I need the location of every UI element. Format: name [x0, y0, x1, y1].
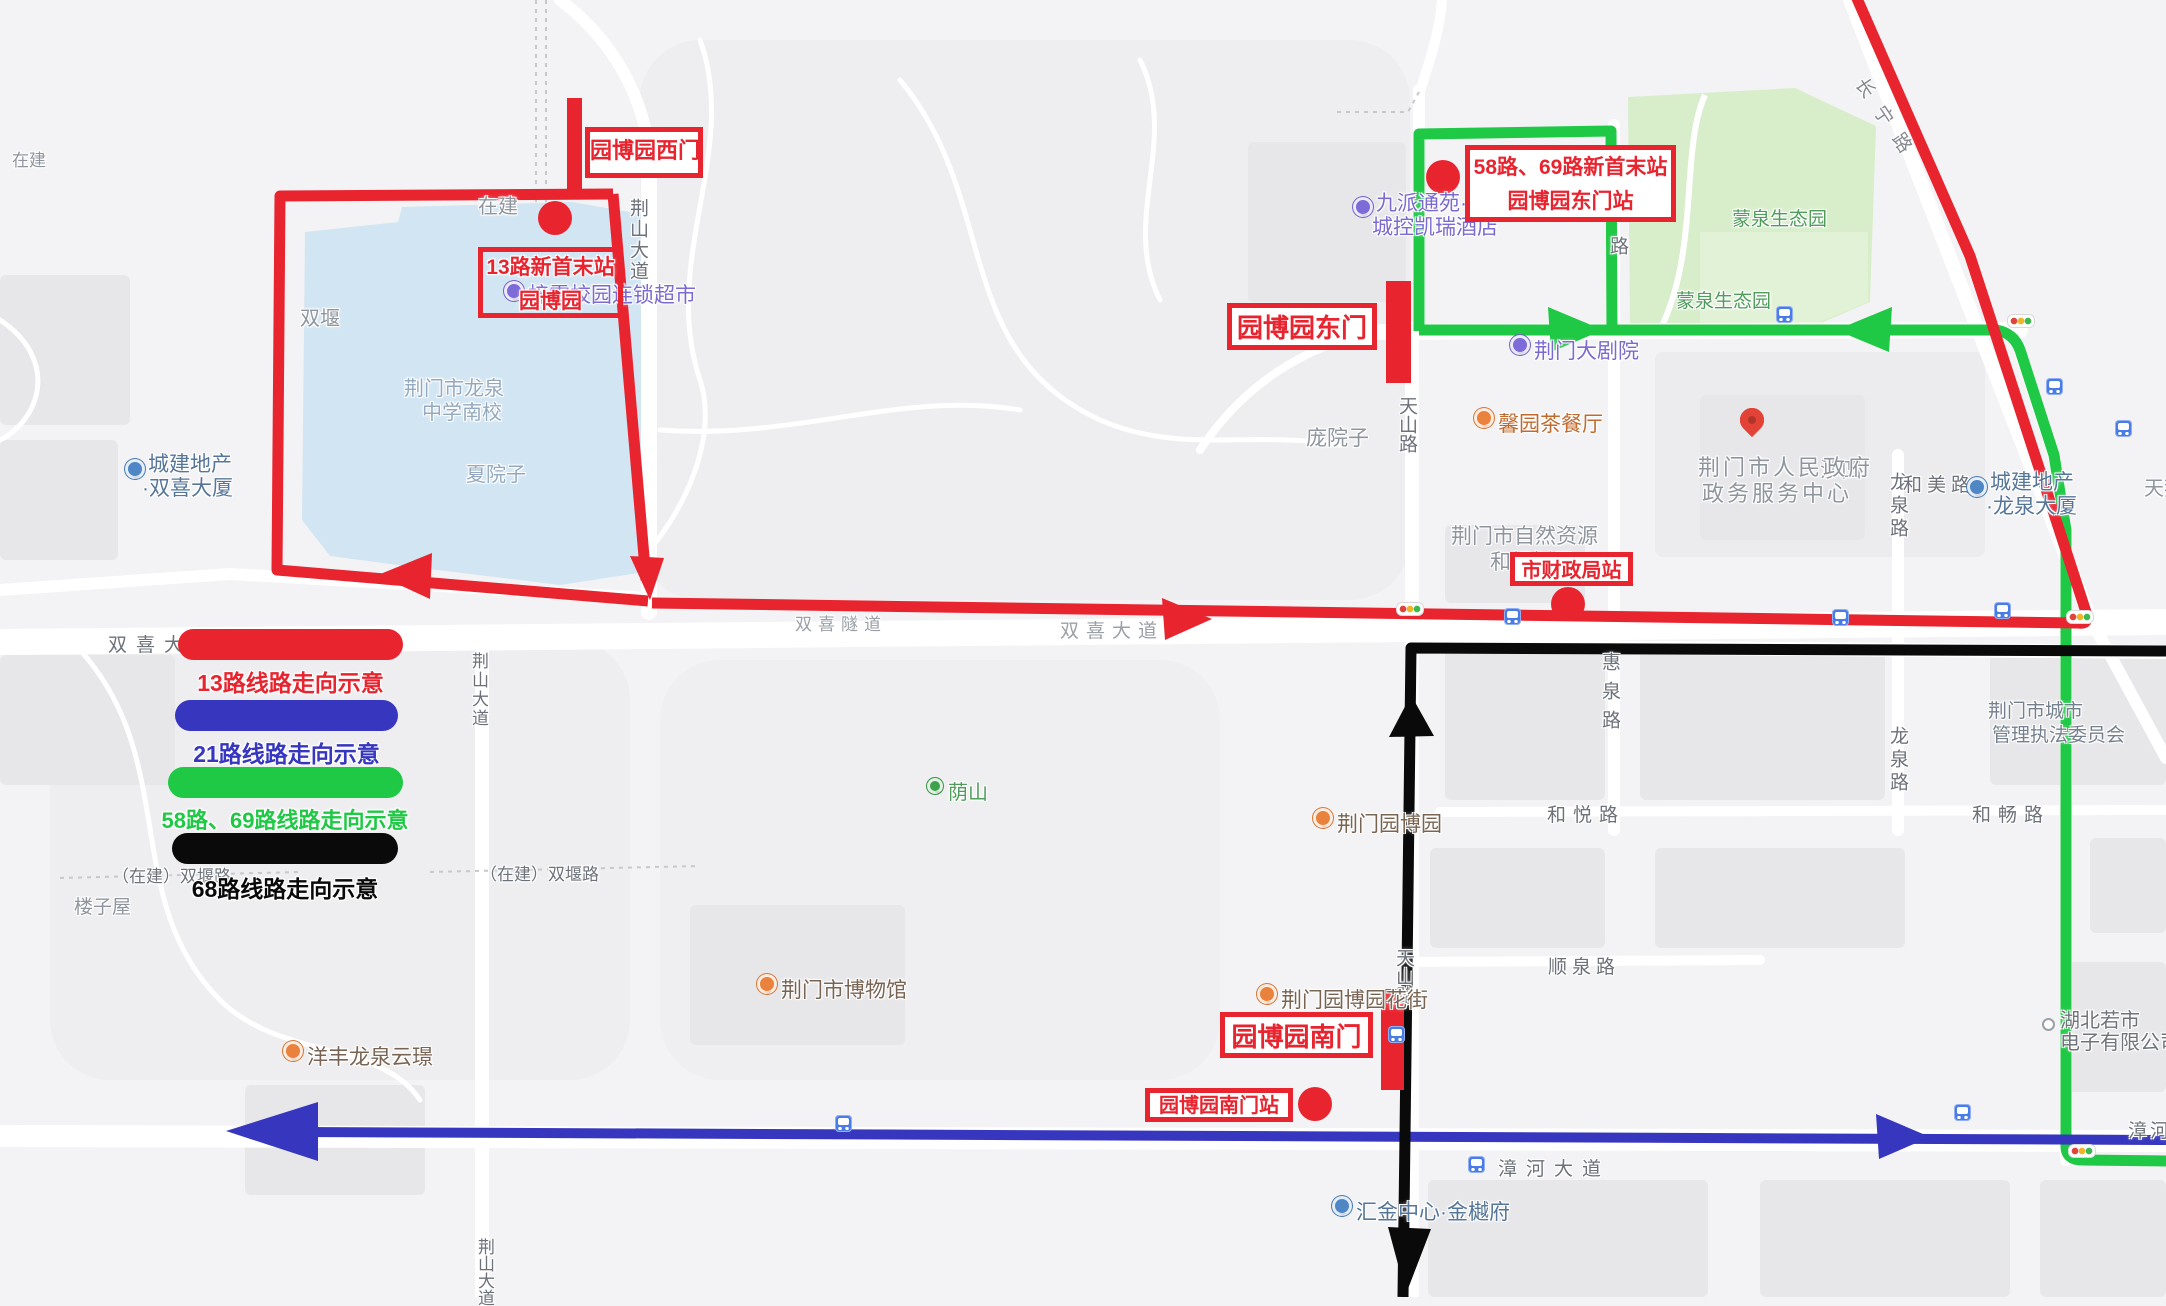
- route-68-arrow-up: [1389, 695, 1434, 737]
- park-poi-icon: [1312, 807, 1334, 829]
- bus-stop-icon: [835, 1115, 852, 1132]
- traffic-light-icon: [1396, 602, 1424, 616]
- residence-poi-icon: [282, 1040, 304, 1062]
- poi-yinshan: 荫山: [948, 776, 988, 805]
- station-dot-caizheng: [1551, 587, 1585, 621]
- area-label-mengquan-lower: 蒙泉生态园: [1676, 286, 1771, 313]
- area-label-pangyuanzi: 庞院子: [1306, 422, 1369, 452]
- station-dot-13: [538, 201, 572, 235]
- theater-poi-icon: [1509, 334, 1531, 356]
- poi-chengguan-line2: 管理执法委员会: [1992, 720, 2125, 747]
- road-label-hechang-lu: 和畅路: [1972, 800, 2050, 827]
- road-label-shuangxi-dadao-center: 双喜大道: [1060, 616, 1164, 643]
- bus-stop-icon: [1954, 1104, 1971, 1121]
- legend-bar-route-13: [178, 629, 403, 660]
- bus-stop-icon: [1832, 609, 1849, 626]
- station-dot-nanmen: [1298, 1087, 1332, 1121]
- road-label-zhanghe-dadao: 漳河大道: [1498, 1154, 1610, 1181]
- mountain-poi-icon: [926, 777, 944, 795]
- road-label-shuangyan-lu-center: （在建）双堰路: [480, 860, 599, 885]
- bus-stop-icon: [1504, 608, 1521, 625]
- area-label-zaijian-westgate: 在建: [478, 190, 518, 219]
- poi-jingmen-yuanboyuan: 荆门园博园: [1337, 808, 1442, 838]
- route-68-arrow-down: [1388, 1227, 1431, 1294]
- poi-chengjian-longquan-line2: ·龙泉大厦: [1986, 490, 2077, 520]
- bus-stop-icon: [1388, 1026, 1405, 1043]
- poi-yuanboyuan-huajie: 荆门园博园花街: [1281, 984, 1428, 1014]
- poi-chengguan-line1: 荆门市城市: [1988, 696, 2083, 723]
- station-label-58-69: 58路、69路新首末站 园博园东门站: [1465, 145, 1676, 222]
- gate-label-west: 园博园西门: [585, 127, 703, 178]
- station-label-caizheng: 市财政局站: [1510, 552, 1633, 586]
- station-label-13-line1: 13路新首末站: [483, 255, 618, 281]
- building-poi-icon: [1331, 1195, 1353, 1217]
- road-label-jingshan-dadao-south: 荆山大道: [466, 652, 491, 728]
- area-label-zaijian-topleft: 在建: [12, 146, 46, 171]
- legend-label-route-68: 68路线路走向示意: [172, 870, 398, 904]
- road-label-zhanghe-dadao-right: 漳河大道: [2128, 1116, 2166, 1143]
- road-label-longquan-lu-lower: 龙泉路: [1884, 726, 1911, 795]
- company-dot-icon: [2042, 1018, 2055, 1031]
- poi-jingmen-museum: 荆门市博物馆: [781, 974, 907, 1004]
- traffic-light-icon: [2007, 314, 2035, 328]
- road-label-shunquan-lu: 顺泉路: [1548, 952, 1620, 979]
- traffic-light-icon: [2068, 1144, 2096, 1158]
- road-label-jingshan-dadao-north: 荆山大道: [624, 198, 651, 282]
- route-21-arrow-east: [1876, 1114, 1930, 1159]
- route-58-69-arrow-west: [1836, 307, 1892, 352]
- map-canvas[interactable]: 双喜大道 双喜隧道 双喜大道 荆山大道 荆山大道 荆山大道 天山路 天山路 惠泉…: [0, 0, 2166, 1297]
- gate-label-east: 园博园东门: [1227, 303, 1377, 350]
- area-label-shuangyan: 双堰: [300, 302, 340, 331]
- legend-bar-route-58-69: [168, 767, 403, 798]
- bus-stop-icon: [1776, 306, 1793, 323]
- poi-xinyuan-tea-restaurant: 馨园茶餐厅: [1498, 408, 1603, 438]
- bus-stop-icon: [2046, 378, 2063, 395]
- poi-yangfeng-longquan: 洋丰龙泉云璟: [307, 1041, 433, 1071]
- bus-stop-icon: [1994, 602, 2011, 619]
- road-label-heyue-lu: 和悦路: [1547, 800, 1625, 827]
- lake-label-line2: 中学南校: [422, 396, 502, 425]
- hotel-poi-icon: [1352, 196, 1374, 218]
- museum-poi-icon: [756, 973, 778, 995]
- poi-government-line2: 政务服务中心: [1702, 476, 1852, 508]
- road-label-shuangxi-suidao: 双喜隧道: [795, 610, 887, 635]
- gate-bar-east: [1386, 281, 1411, 383]
- restaurant-poi-icon: [1473, 407, 1495, 429]
- station-label-58-69-line2: 园博园东门站: [1470, 189, 1671, 215]
- station-label-13: 13路新首末站 园博园: [478, 247, 623, 318]
- poi-hubei-ruoshi-line2: 电子有限公司: [2060, 1026, 2166, 1055]
- gate-bar-west: [567, 98, 582, 193]
- building-poi-icon: [1966, 476, 1988, 498]
- area-label-xiayuanzi: 夏院子: [466, 458, 526, 487]
- bus-stop-icon: [1468, 1156, 1485, 1173]
- area-label-mengquan-upper: 蒙泉生态园: [1732, 204, 1827, 231]
- legend-label-route-58-69: 58路、69路线路走向示意: [140, 803, 430, 835]
- legend-bar-route-21: [175, 700, 398, 731]
- bus-stop-icon: [2115, 420, 2132, 437]
- traffic-light-icon: [2066, 610, 2094, 624]
- road-label-huiquan-lu-south: 惠泉路: [1596, 652, 1623, 739]
- legend-label-route-13: 13路线路走向示意: [178, 664, 403, 698]
- area-label-tiane: 天鹅广场: [2144, 472, 2166, 501]
- poi-jingmen-grand-theater: 荆门大剧院: [1534, 335, 1639, 365]
- station-label-nanmen: 园博园南门站: [1145, 1088, 1293, 1122]
- legend-bar-route-68: [172, 833, 398, 864]
- area-label-louziwu: 楼子屋: [74, 892, 131, 919]
- poi-chengjian-shuangxi-line2: ·双喜大厦: [142, 472, 233, 502]
- road-label-jingshan-dadao-bottom: 荆山大道: [472, 1238, 497, 1306]
- road-label-tianshan-lu-north: 天山路: [1393, 396, 1420, 453]
- station-label-58-69-line1: 58路、69路新首末站: [1470, 155, 1671, 181]
- poi-huijin-center: 汇金中心·金樾府: [1356, 1196, 1510, 1226]
- road-label-hemei-lu: 和美路: [1903, 470, 1975, 497]
- gate-label-south: 园博园南门: [1220, 1012, 1373, 1058]
- legend-label-route-21: 21路线路走向示意: [175, 735, 398, 769]
- station-label-13-line2: 园博园: [483, 289, 618, 315]
- shopping-street-poi-icon: [1256, 983, 1278, 1005]
